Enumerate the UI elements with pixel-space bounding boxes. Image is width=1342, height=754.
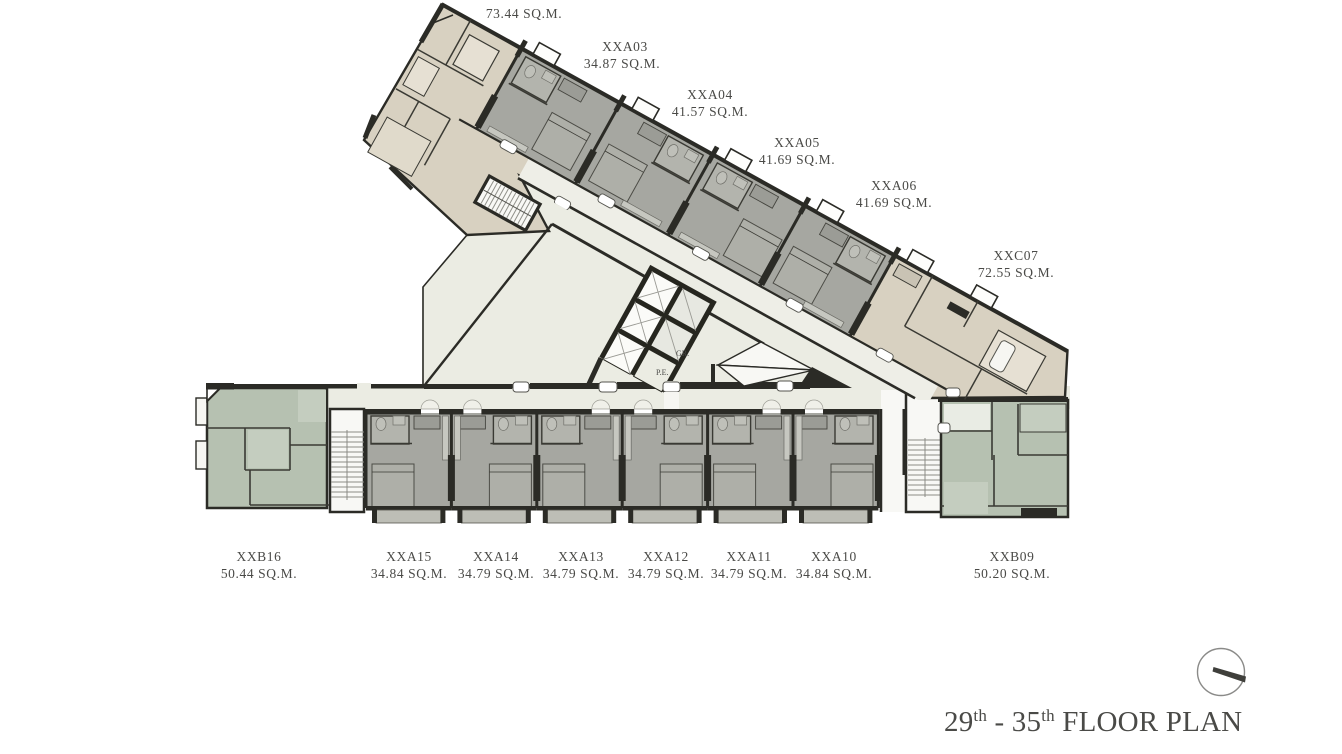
- svg-text:34.84 SQ.M.: 34.84 SQ.M.: [796, 566, 872, 581]
- svg-text:P.E.: P.E.: [656, 368, 668, 377]
- svg-text:XXB09: XXB09: [989, 549, 1034, 564]
- svg-text:41.69 SQ.M.: 41.69 SQ.M.: [856, 195, 932, 210]
- svg-text:XXA06: XXA06: [871, 178, 917, 193]
- svg-text:73.44 SQ.M.: 73.44 SQ.M.: [486, 6, 562, 21]
- svg-text:41.57 SQ.M.: 41.57 SQ.M.: [672, 104, 748, 119]
- svg-text:XXA04: XXA04: [687, 87, 733, 102]
- svg-text:34.79 SQ.M.: 34.79 SQ.M.: [711, 566, 787, 581]
- svg-text:XXA15: XXA15: [386, 549, 432, 564]
- svg-text:34.79 SQ.M.: 34.79 SQ.M.: [543, 566, 619, 581]
- svg-text:XXC07: XXC07: [993, 248, 1038, 263]
- svg-text:XXB16: XXB16: [236, 549, 281, 564]
- svg-text:34.79 SQ.M.: 34.79 SQ.M.: [628, 566, 704, 581]
- svg-text:34.84 SQ.M.: 34.84 SQ.M.: [371, 566, 447, 581]
- svg-text:41.69 SQ.M.: 41.69 SQ.M.: [759, 152, 835, 167]
- svg-text:XXA13: XXA13: [558, 549, 604, 564]
- svg-text:XXA05: XXA05: [774, 135, 820, 150]
- svg-text:XXA14: XXA14: [473, 549, 519, 564]
- svg-text:XXA11: XXA11: [726, 549, 771, 564]
- svg-text:GR.: GR.: [676, 349, 689, 358]
- svg-text:50.44 SQ.M.: 50.44 SQ.M.: [221, 566, 297, 581]
- svg-text:34.87 SQ.M.: 34.87 SQ.M.: [584, 56, 660, 71]
- svg-text:72.55 SQ.M.: 72.55 SQ.M.: [978, 265, 1054, 280]
- svg-text:XXA10: XXA10: [811, 549, 857, 564]
- svg-text:29th - 35th FLOOR PLAN: 29th - 35th FLOOR PLAN: [944, 706, 1242, 738]
- svg-text:XXA12: XXA12: [643, 549, 689, 564]
- svg-text:50.20 SQ.M.: 50.20 SQ.M.: [974, 566, 1050, 581]
- svg-text:34.79 SQ.M.: 34.79 SQ.M.: [458, 566, 534, 581]
- svg-text:XXA03: XXA03: [602, 39, 648, 54]
